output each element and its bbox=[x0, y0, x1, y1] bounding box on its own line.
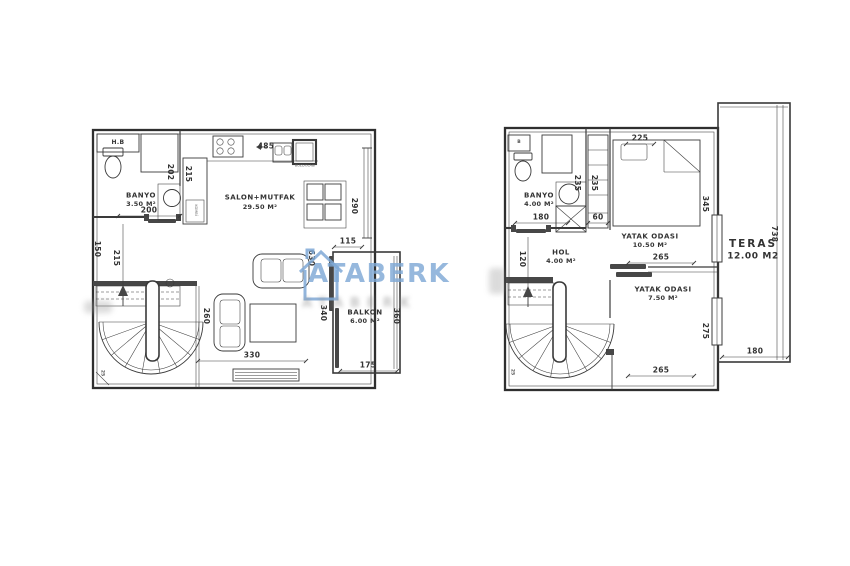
floor-plan-sheet: H.B BANYO 3.50 M² SALON+MUTFAK 29.50 M² … bbox=[0, 0, 850, 566]
room-area-yatak2: 7.50 M² bbox=[648, 295, 678, 302]
dim-330: 330 bbox=[244, 351, 261, 359]
spiral-staircase-ground bbox=[96, 224, 203, 374]
bed bbox=[613, 140, 700, 226]
dim-235-a: 235 bbox=[573, 175, 581, 192]
room-label-b: B bbox=[517, 141, 520, 146]
room-label-banyo-gf: BANYO bbox=[126, 193, 156, 200]
room-area-banyo-uf: 4.00 M² bbox=[524, 201, 554, 208]
room-label-yatak2: YATAK ODASI bbox=[634, 287, 691, 294]
dim-215-top: 215 bbox=[184, 166, 192, 183]
watermark-text: ATABERK bbox=[308, 259, 450, 289]
boiler-label: KOMBİ bbox=[193, 204, 197, 215]
fridge-label: BUZDOLABI bbox=[295, 164, 316, 168]
dim-25-uf: 25 bbox=[509, 369, 514, 375]
entry-doormat bbox=[233, 369, 299, 381]
watermark-logo: ATABERK bbox=[296, 243, 456, 303]
dining-set bbox=[304, 181, 346, 228]
room-area-salon: 29.50 M² bbox=[243, 204, 278, 211]
dim-225: 225 bbox=[632, 134, 649, 142]
room-label-yatak1: YATAK ODASI bbox=[621, 234, 678, 241]
dim-260: 260 bbox=[202, 308, 210, 325]
dim-738: 738 bbox=[770, 226, 778, 243]
dim-120: 120 bbox=[518, 251, 526, 268]
watermark-shadow: ATABERK bbox=[302, 296, 452, 311]
room-label-hol: HOL bbox=[552, 250, 570, 257]
dim-202: 202 bbox=[166, 164, 174, 181]
dim-265-mid: 265 bbox=[653, 253, 670, 261]
room-label-banyo-uf: BANYO bbox=[524, 193, 554, 200]
watermark-smudge-left bbox=[84, 301, 112, 313]
room-label-hb: H.B bbox=[111, 140, 124, 146]
dim-25-gf: 25 bbox=[99, 370, 104, 376]
dim-180-teras: 180 bbox=[747, 347, 764, 355]
dim-275: 275 bbox=[701, 323, 709, 340]
room-label-salon: SALON+MUTFAK bbox=[225, 195, 296, 202]
dim-290: 290 bbox=[350, 198, 358, 215]
watermark-smudge-right bbox=[489, 268, 505, 294]
dim-215-left: 215 bbox=[112, 250, 120, 267]
room-area-yatak1: 10.50 M² bbox=[633, 242, 668, 249]
dim-345: 345 bbox=[701, 196, 709, 213]
dim-265-bottom: 265 bbox=[653, 366, 670, 374]
dim-235-b: 235 bbox=[590, 175, 598, 192]
dim-60: 60 bbox=[592, 213, 603, 221]
room-area-teras: 12.00 M2 bbox=[727, 253, 779, 262]
dim-200: 200 bbox=[141, 206, 158, 214]
dim-175: 175 bbox=[360, 361, 377, 369]
living-room-furniture bbox=[214, 254, 309, 351]
dim-150: 150 bbox=[93, 241, 101, 258]
room-area-balkon: 6.00 M² bbox=[350, 318, 380, 325]
dim-485: 485 bbox=[258, 142, 275, 150]
room-area-hol: 4.00 M² bbox=[546, 258, 576, 265]
dim-180-banyo: 180 bbox=[533, 213, 550, 221]
